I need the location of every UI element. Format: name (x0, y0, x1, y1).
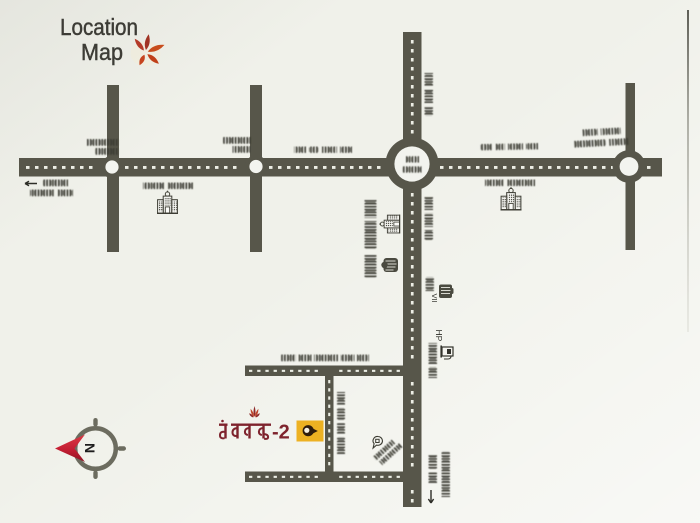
svg-text:Map: Map (81, 39, 123, 65)
svg-text:Location: Location (60, 14, 138, 40)
svg-text:-2: -2 (272, 422, 290, 444)
svg-text:VII: VII (430, 294, 439, 303)
svg-text:HP: HP (434, 330, 444, 342)
svg-text:N: N (82, 443, 98, 453)
